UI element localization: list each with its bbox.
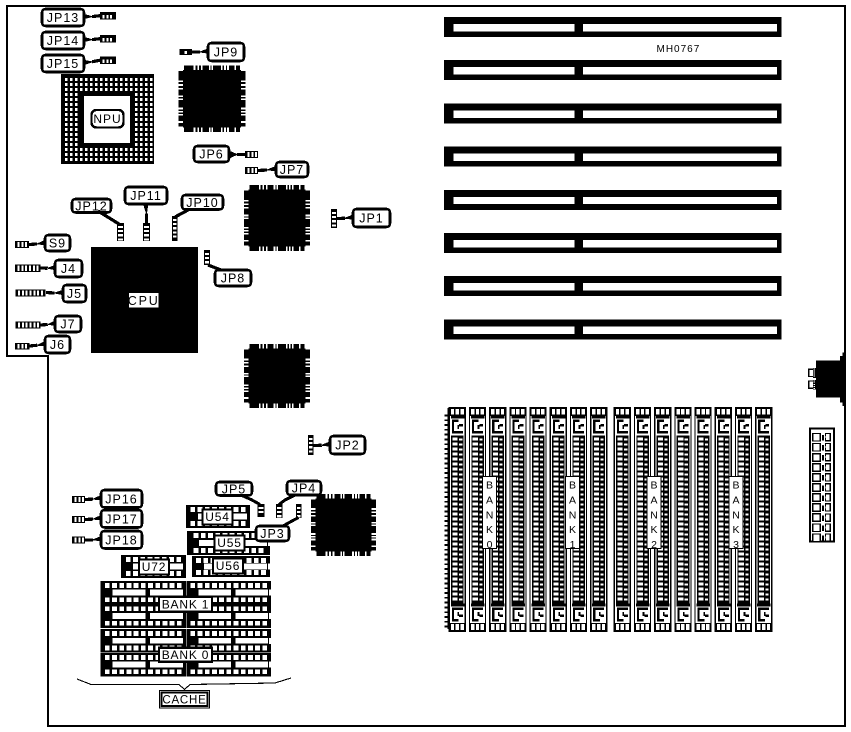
svg-text:CPU: CPU bbox=[128, 294, 160, 308]
svg-text:JP9: JP9 bbox=[214, 46, 239, 60]
svg-text:JP1: JP1 bbox=[359, 212, 384, 226]
svg-text:3: 3 bbox=[733, 539, 739, 551]
svg-text:BANK 0: BANK 0 bbox=[162, 648, 210, 662]
svg-text:B: B bbox=[486, 480, 493, 492]
svg-text:A: A bbox=[650, 494, 657, 506]
svg-text:JP18: JP18 bbox=[105, 533, 138, 547]
svg-text:CACHE: CACHE bbox=[162, 695, 206, 707]
svg-text:A: A bbox=[569, 494, 576, 506]
svg-text:N: N bbox=[732, 509, 740, 521]
svg-text:JP4: JP4 bbox=[292, 482, 317, 496]
svg-text:JP3: JP3 bbox=[260, 527, 285, 541]
svg-text:U54: U54 bbox=[205, 510, 229, 524]
svg-text:1: 1 bbox=[570, 539, 576, 551]
svg-text:J7: J7 bbox=[60, 318, 75, 332]
svg-text:JP17: JP17 bbox=[105, 512, 138, 526]
svg-text:JP6: JP6 bbox=[199, 148, 224, 162]
svg-text:JP14: JP14 bbox=[47, 34, 80, 48]
svg-text:K: K bbox=[486, 524, 493, 536]
svg-text:K: K bbox=[569, 524, 576, 536]
svg-text:JP8: JP8 bbox=[221, 272, 246, 286]
svg-text:0: 0 bbox=[487, 539, 493, 551]
svg-text:N: N bbox=[650, 509, 658, 521]
svg-text:JP10: JP10 bbox=[186, 196, 219, 210]
svg-text:JP16: JP16 bbox=[105, 492, 138, 506]
svg-text:JP7: JP7 bbox=[280, 163, 305, 177]
svg-text:BANK 1: BANK 1 bbox=[162, 598, 210, 612]
svg-text:MH0767: MH0767 bbox=[657, 44, 701, 55]
svg-text:A: A bbox=[486, 494, 493, 506]
svg-text:K: K bbox=[650, 524, 657, 536]
svg-text:JP13: JP13 bbox=[47, 11, 80, 25]
svg-text:NPU: NPU bbox=[93, 112, 121, 126]
svg-text:K: K bbox=[732, 524, 739, 536]
svg-text:N: N bbox=[486, 509, 494, 521]
svg-text:B: B bbox=[569, 480, 576, 492]
svg-text:JP11: JP11 bbox=[130, 189, 162, 203]
svg-text:B: B bbox=[732, 480, 739, 492]
svg-text:A: A bbox=[732, 494, 739, 506]
svg-text:U72: U72 bbox=[142, 560, 166, 574]
svg-text:J5: J5 bbox=[67, 287, 82, 301]
svg-text:J6: J6 bbox=[50, 338, 65, 352]
svg-text:B: B bbox=[650, 480, 657, 492]
svg-text:JP12: JP12 bbox=[75, 199, 108, 213]
svg-text:JP15: JP15 bbox=[47, 57, 80, 71]
svg-text:2: 2 bbox=[651, 539, 657, 551]
svg-text:U56: U56 bbox=[216, 559, 240, 573]
svg-text:JP2: JP2 bbox=[335, 439, 360, 453]
svg-text:N: N bbox=[569, 509, 577, 521]
svg-text:J4: J4 bbox=[61, 262, 76, 276]
svg-text:S9: S9 bbox=[49, 237, 66, 251]
svg-text:U55: U55 bbox=[217, 536, 241, 550]
